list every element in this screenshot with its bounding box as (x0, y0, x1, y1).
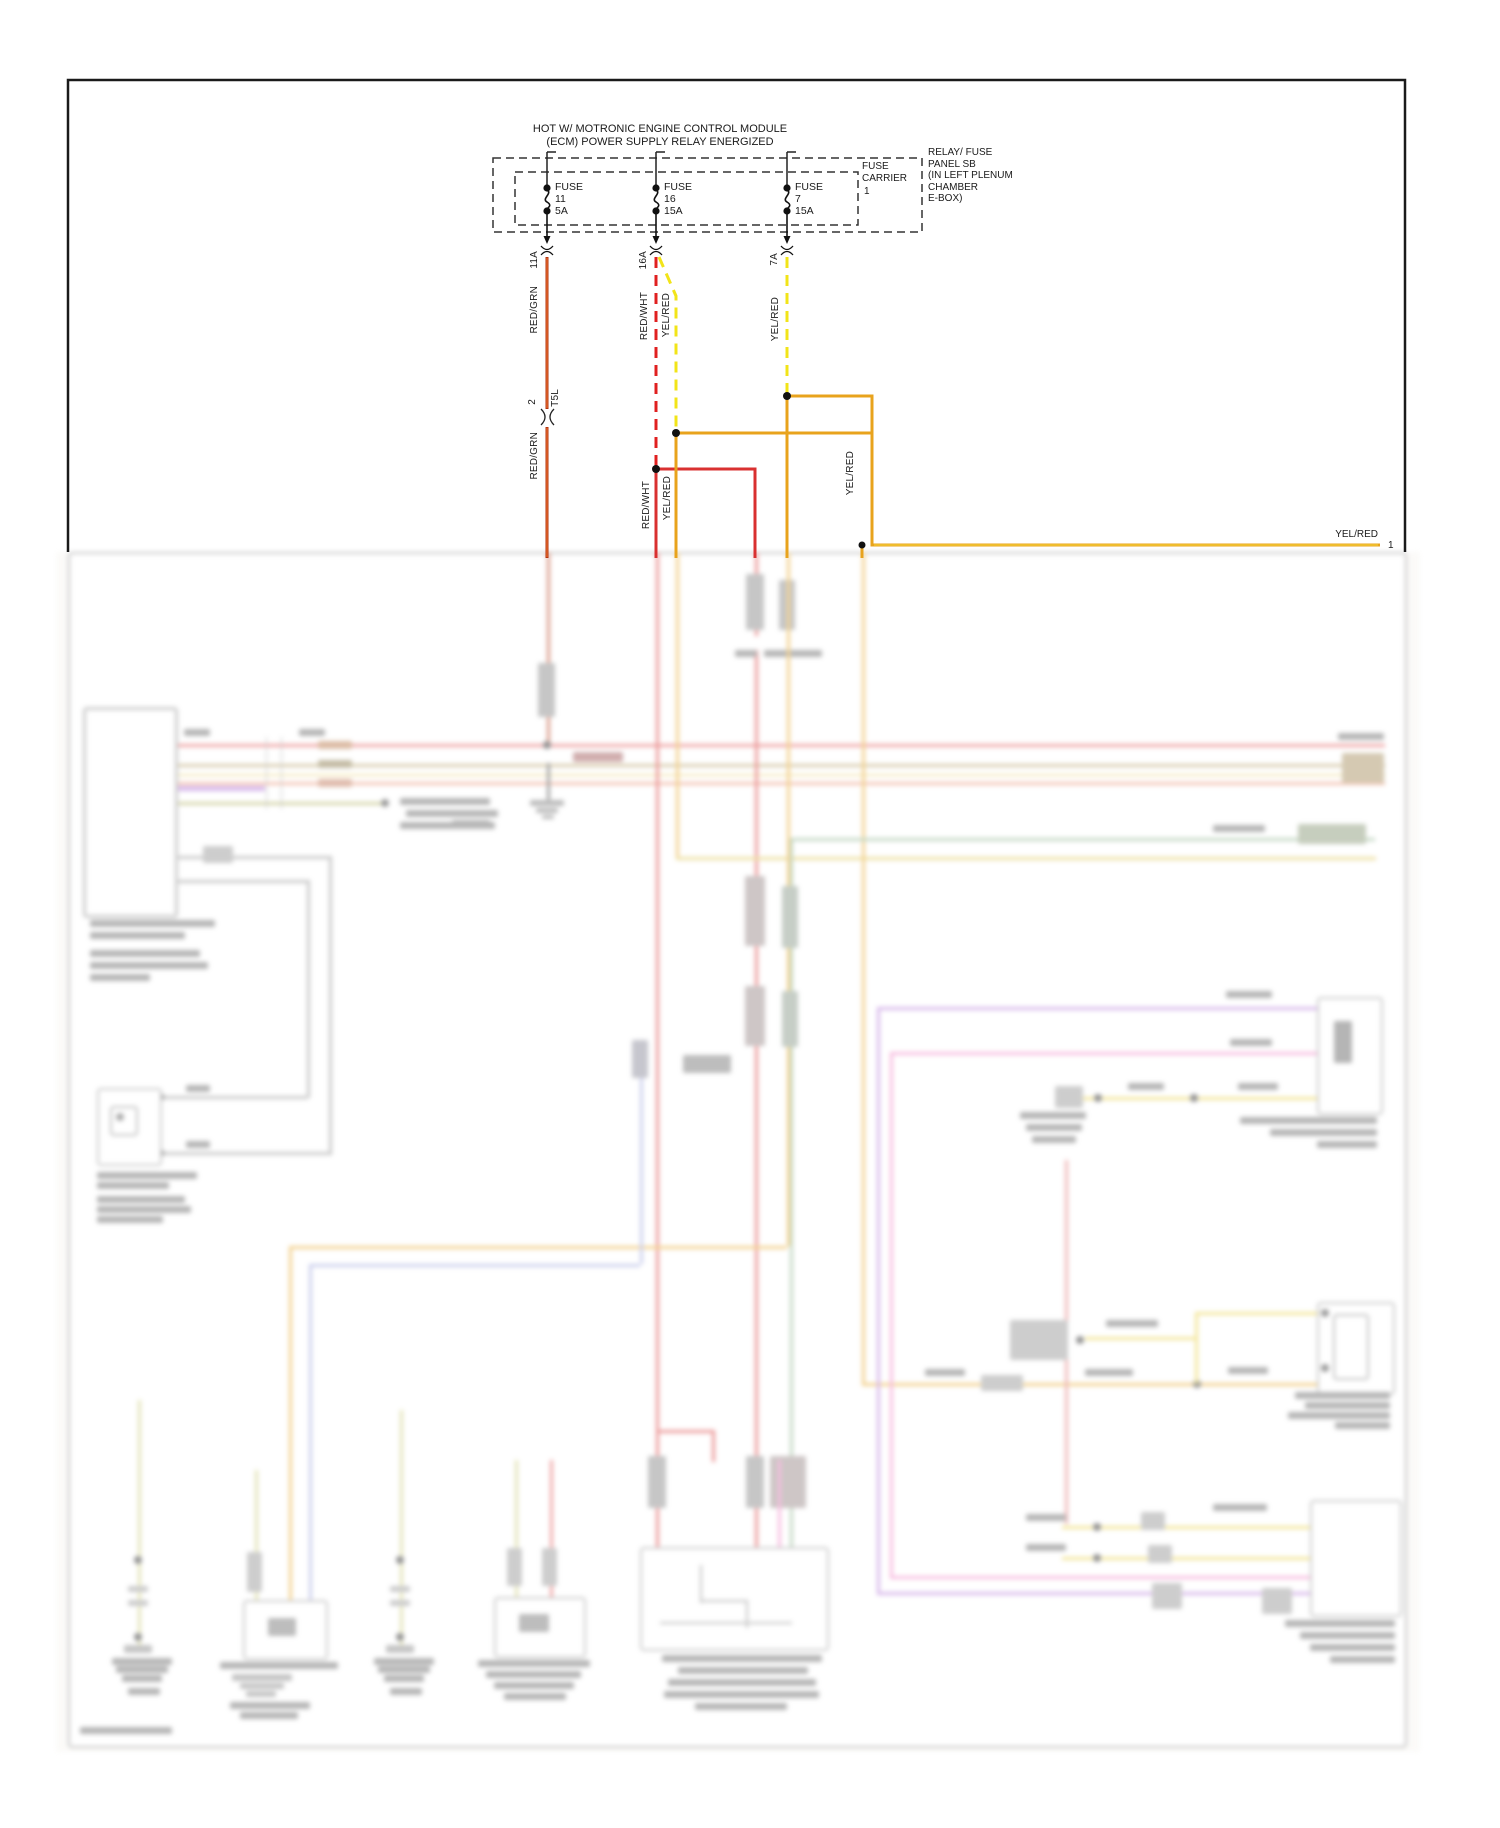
blurred-shape (1285, 1620, 1395, 1627)
pin-16a-label: 16A (638, 251, 649, 269)
wire-label-yel-red-16: YEL/RED (661, 293, 672, 337)
blurred-shape (172, 856, 329, 859)
blurred-shape (309, 1264, 640, 1267)
blurred-shape (230, 1702, 310, 1709)
blurred-shape (134, 1556, 142, 1564)
blurred-shape (733, 636, 807, 650)
blurred-shape (782, 991, 798, 1047)
fuse-7-label: FUSE 7 15A (795, 181, 823, 217)
blurred-shape (116, 1666, 168, 1673)
blurred-shape (1141, 1512, 1165, 1530)
panel-location-line: E-BOX) (928, 193, 1013, 205)
exit-pin-label: 1 (1388, 540, 1394, 552)
blurred-shape (128, 1600, 148, 1606)
blurred-shape (746, 1456, 764, 1508)
blurred-shape (1288, 1412, 1390, 1419)
wire-yel-red-solid (676, 396, 1380, 558)
blurred-shape (1026, 1124, 1082, 1131)
blurred-shape (1213, 1504, 1267, 1511)
blurred-shape (172, 764, 1385, 767)
blurred-shape (97, 1206, 191, 1213)
wire-label-red-wht: RED/WHT (639, 292, 650, 340)
blurred-shape (507, 1548, 522, 1586)
fuse-carrier-number: 1 (864, 186, 870, 198)
connector-code-label: T5L (550, 389, 561, 407)
blurred-shape (543, 741, 551, 749)
blurred-shape (268, 1618, 296, 1636)
blurred-shape (981, 1375, 1023, 1391)
panel-location-label: RELAY/ FUSE PANEL SB (IN LEFT PLENUM CHA… (928, 147, 1013, 205)
blurred-shape (745, 876, 765, 946)
blurred-shape (329, 856, 332, 1155)
fuse-7-word: FUSE (795, 181, 823, 193)
blurred-shape (1085, 1337, 1195, 1340)
fuse-11-label: FUSE 11 5A (555, 181, 583, 217)
fuse-7-symbol (781, 185, 793, 255)
blurred-shape (266, 737, 267, 809)
blurred-shape (281, 737, 282, 809)
blurred-shape (1335, 1422, 1390, 1429)
blurred-shape (247, 1552, 262, 1592)
blurred-shape (640, 1075, 643, 1264)
blurred-shape (110, 1106, 138, 1136)
blurred-shape (1262, 1588, 1292, 1614)
blurred-shape (1321, 1309, 1329, 1317)
blurred-shape (97, 1216, 163, 1223)
blurred-shape (778, 1460, 781, 1547)
blurred-shape (1093, 1523, 1101, 1531)
blurred-shape (542, 1548, 557, 1586)
fuse-16-word: FUSE (664, 181, 692, 193)
blurred-shape (1230, 1039, 1272, 1046)
blurred-shape (128, 1688, 160, 1695)
blurred-shape (1228, 1367, 1268, 1374)
blurred-shape (1032, 1136, 1076, 1143)
blurred-shape (664, 1691, 819, 1698)
blurred-shape (890, 1052, 893, 1578)
blurred-shape (240, 1712, 298, 1719)
blurred-shape (668, 1679, 816, 1686)
blurred-shape (307, 880, 310, 1098)
blurred-shape (1305, 1402, 1390, 1409)
blurred-shape (1213, 825, 1265, 832)
blurred-shape (542, 815, 554, 819)
blurred-shape (764, 650, 822, 657)
blurred-shape (538, 663, 555, 717)
blurred-shape (384, 1675, 424, 1682)
blurred-shape (240, 1683, 284, 1689)
blurred-shape (299, 729, 325, 736)
blurred-shape (1026, 1514, 1066, 1521)
diagram-header-line2: (ECM) POWER SUPPLY RELAY ENERGIZED (410, 136, 910, 148)
blurred-shape (390, 1586, 410, 1592)
blurred-shape (97, 1172, 197, 1179)
blurred-shape (1298, 824, 1366, 844)
wire-label-red-wht-2: RED/WHT (641, 481, 652, 529)
blurred-shape (122, 1675, 162, 1682)
blurred-shape (97, 1196, 185, 1203)
blurred-shape (1321, 1364, 1329, 1372)
fuse-16-label: FUSE 16 15A (664, 181, 692, 217)
blurred-shape (1295, 1392, 1390, 1399)
blurred-shape (138, 1400, 141, 1650)
blurred-shape (116, 1113, 124, 1121)
connector-pin-label: 2 (527, 399, 538, 405)
diagram-header-line1: HOT W/ MOTRONIC ENGINE CONTROL MODULE (410, 123, 910, 135)
blurred-shape (172, 744, 1385, 747)
blurred-shape (632, 1040, 648, 1078)
blurred-shape (683, 1055, 731, 1073)
blurred-shape (232, 1674, 292, 1681)
blurred-shape (90, 962, 208, 969)
blurred-shape (660, 1622, 792, 1624)
junction-dot (672, 429, 680, 437)
blurred-shape (504, 1693, 566, 1700)
blurred-shape (656, 552, 659, 1547)
blurred-shape (390, 1688, 422, 1695)
panel-location-line: CHAMBER (928, 182, 1013, 194)
blurred-shape (890, 1576, 1310, 1579)
blurred-shape (676, 552, 679, 858)
pin-7a-label: 7A (769, 253, 780, 266)
blurred-shape (452, 810, 498, 817)
blurred-shape (770, 1456, 806, 1508)
blurred-shape (1128, 1083, 1164, 1090)
blurred-shape (1195, 1312, 1323, 1315)
blurred-shape (1317, 1141, 1377, 1148)
wiring-diagram-page: HOT W/ MOTRONIC ENGINE CONTROL MODULE (E… (0, 0, 1500, 1828)
blurred-shape (378, 1666, 430, 1673)
blurred-shape (1310, 1500, 1402, 1617)
blurred-shape (478, 1660, 590, 1667)
blurred-shape (1106, 1320, 1158, 1327)
blurred-shape (1238, 1083, 1278, 1090)
page-border (68, 80, 1405, 552)
blurred-shape (745, 986, 765, 1046)
panel-location-line: RELAY/ FUSE (928, 147, 1013, 159)
blurred-shape (90, 932, 185, 939)
blurred-shape (184, 729, 210, 736)
fuse-11-word: FUSE (555, 181, 583, 193)
blurred-shape (1226, 991, 1272, 998)
blurred-shape (97, 1182, 169, 1189)
blurred-shape (1148, 1545, 1172, 1563)
blurred-shape (1333, 1314, 1369, 1380)
blurred-shape (877, 1007, 880, 1594)
fuse-carrier-label: FUSE CARRIER (862, 161, 918, 184)
blurred-shape (124, 1645, 152, 1653)
fuse-11-number: 11 (555, 193, 583, 205)
blurred-shape (400, 798, 490, 805)
blurred-shape (112, 1658, 172, 1665)
blurred-shape (90, 950, 200, 957)
blurred-shape (1026, 1544, 1066, 1551)
wire-label-yel-red-7: YEL/RED (770, 297, 781, 341)
junction-dot (783, 392, 791, 400)
blurred-shape (662, 1655, 822, 1662)
blurred-shape (1010, 1320, 1068, 1360)
blurred-shape (1152, 1583, 1182, 1609)
blurred-shape (1330, 1656, 1395, 1663)
fuse-11-rating: 5A (555, 205, 583, 217)
blurred-shape (400, 1410, 403, 1650)
blurred-shape (390, 1600, 410, 1606)
blurred-shape (80, 1727, 172, 1734)
blurred-shape (925, 1369, 965, 1376)
blurred-shape (158, 1096, 307, 1099)
blurred-shape (289, 1246, 292, 1600)
blurred-shape (486, 1671, 581, 1678)
blurred-shape (1020, 1112, 1086, 1119)
blurred-shape (695, 1703, 787, 1710)
wire-label-yel-red-branch: YEL/RED (845, 451, 856, 495)
blurred-shape (318, 779, 352, 787)
blurred-shape (1310, 1644, 1395, 1651)
blurred-shape (519, 1614, 549, 1632)
blurred-shape (186, 1085, 210, 1092)
blurred-shape (172, 774, 1385, 776)
blurred-shape (890, 1052, 1317, 1055)
blurred-shape (1338, 733, 1384, 740)
blurred-shape (172, 782, 1385, 785)
blurred-shape (678, 1667, 808, 1674)
blurred-shape (547, 763, 550, 801)
blurred-shape (700, 1565, 702, 1603)
blurred-shape (573, 752, 623, 762)
blurred-shape (536, 808, 558, 813)
fuse-16-number: 16 (664, 193, 692, 205)
t5l-connector-symbol (541, 409, 554, 425)
blurred-shape (494, 1682, 574, 1689)
blurred-shape (396, 1633, 404, 1641)
blurred-shape (712, 1430, 715, 1462)
fuse-16-symbol (650, 185, 662, 255)
blurred-shape (735, 650, 757, 657)
blurred-shape (220, 1662, 338, 1669)
blurred-shape (246, 1691, 276, 1697)
junction-dot (859, 542, 866, 549)
blurred-shape (386, 1645, 414, 1653)
blurred-shape (1240, 1117, 1377, 1124)
blurred-shape (862, 1383, 1322, 1386)
blurred-shape (1270, 1129, 1377, 1136)
blurred-shape (186, 1141, 210, 1148)
blurred-shape (640, 1547, 829, 1651)
blurred-shape (1300, 1632, 1395, 1639)
panel-location-line: PANEL SB (928, 159, 1013, 171)
fuse-7-rating: 15A (795, 205, 823, 217)
blurred-shape (1342, 753, 1384, 783)
blurred-shape (374, 1658, 434, 1665)
blurred-shape (172, 786, 265, 791)
wire-label-yel-red-2: YEL/RED (662, 476, 673, 520)
junction-dot (652, 465, 660, 473)
blurred-shape (309, 1264, 312, 1600)
blurred-shape (656, 1430, 712, 1433)
schematic-lines (0, 0, 1500, 560)
blurred-shape (134, 1633, 142, 1641)
blurred-shape (1334, 1021, 1352, 1063)
blurred-shape (318, 741, 352, 749)
blurred-shape (700, 1600, 746, 1602)
blurred-shape (1076, 1336, 1084, 1344)
blurred-shape (1093, 1554, 1101, 1562)
blurred-shape (648, 1456, 666, 1508)
blurred-shape (1195, 1313, 1198, 1384)
blurred-shape (128, 1586, 148, 1592)
blurred-shape (1094, 1094, 1102, 1102)
blurred-shape (90, 920, 215, 927)
blurred-shape (452, 820, 490, 827)
blurred-shape (172, 880, 307, 883)
wire-yel-red-dashed-16 (659, 257, 676, 430)
fuse-16-rating: 15A (664, 205, 692, 217)
blurred-shape (877, 1592, 1310, 1595)
blurred-shape (318, 760, 352, 768)
blurred-shape (877, 1007, 1317, 1010)
blurred-shape (862, 552, 865, 1384)
blurred-shape (530, 800, 564, 806)
blurred-shape (676, 857, 1376, 860)
blurred-shape (790, 838, 1375, 841)
blurred-shape (289, 1246, 787, 1249)
exit-wire-label: YEL/RED (1292, 529, 1378, 541)
blurred-shape (158, 1152, 329, 1155)
blurred-shape (1085, 1369, 1133, 1376)
pin-11a-label: 11A (529, 251, 540, 269)
blurred-shape (83, 707, 178, 918)
blurred-shape (755, 552, 758, 1547)
fuse-11-symbol (541, 185, 553, 255)
blurred-shape (782, 886, 798, 948)
blurred-shape (1190, 1094, 1198, 1102)
blurred-shape (381, 799, 389, 807)
fuse-7-number: 7 (795, 193, 823, 205)
wire-label-red-grn-2: RED/GRN (529, 432, 540, 480)
wire-label-red-grn: RED/GRN (529, 286, 540, 334)
blurred-shape (172, 802, 384, 805)
blurred-shape (90, 974, 150, 981)
blurred-shape (1055, 1086, 1083, 1108)
panel-location-line: (IN LEFT PLENUM (928, 170, 1013, 182)
blurred-shape (203, 846, 233, 863)
blurred-shape (396, 1556, 404, 1564)
blurred-shape (746, 574, 764, 630)
